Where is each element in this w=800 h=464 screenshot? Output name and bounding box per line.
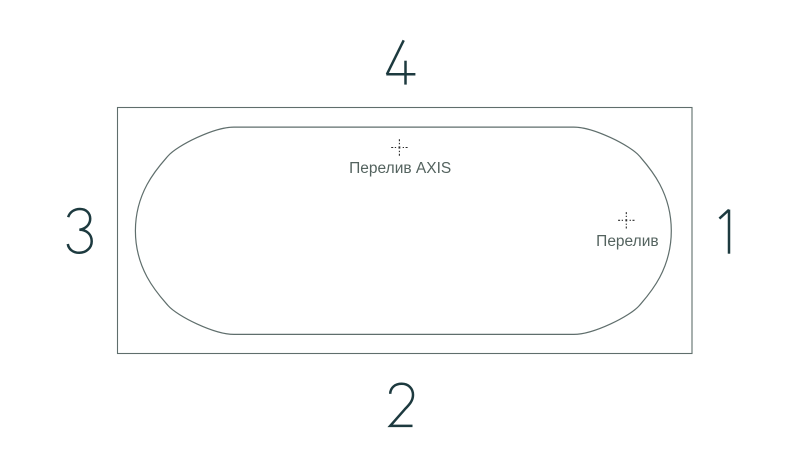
svg-text:Перелив: Перелив: [596, 233, 658, 250]
svg-text:Перелив AXIS: Перелив AXIS: [349, 160, 451, 177]
